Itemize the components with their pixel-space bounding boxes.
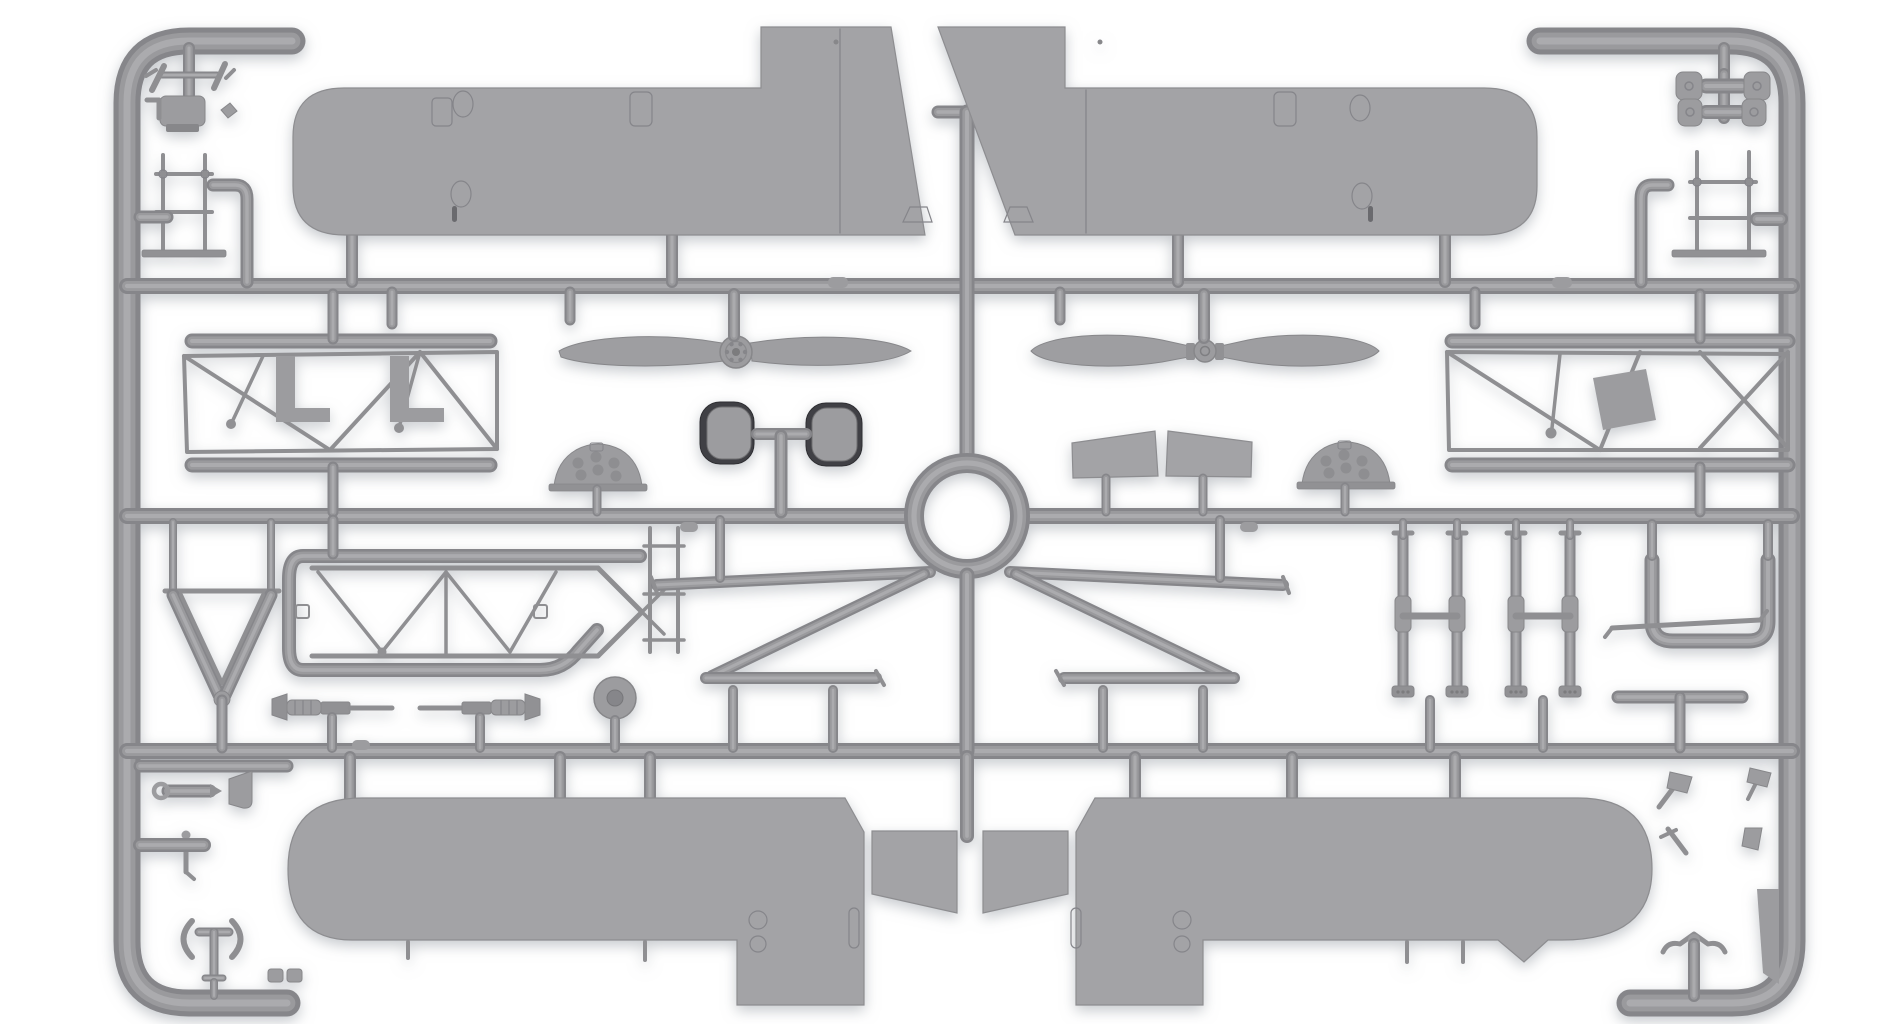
lower-wing-right-pins bbox=[1407, 942, 1463, 962]
clamp-lug-d bbox=[1742, 99, 1766, 126]
gear-strut-2-holes bbox=[1455, 690, 1458, 693]
pad-block-a bbox=[268, 969, 283, 982]
nstrut-left-ticks bbox=[651, 577, 884, 685]
gear-strut-3-holes bbox=[1519, 690, 1522, 693]
gate-nub-5 bbox=[352, 740, 370, 750]
wheel-left-hub bbox=[707, 407, 751, 459]
clamp-lug-a bbox=[1676, 72, 1702, 100]
machine-gun-right-muzzle bbox=[525, 694, 540, 720]
propeller-right-blade-b bbox=[1216, 335, 1379, 366]
tl-screw-right-tick bbox=[226, 70, 234, 78]
cabane-truss-left-pendant-a bbox=[233, 356, 263, 420]
propeller-left-bolts bbox=[738, 358, 742, 362]
gear-strut-4-holes bbox=[1563, 690, 1566, 693]
tl-chip bbox=[221, 103, 237, 118]
tailplane-half-right bbox=[1166, 431, 1252, 477]
upper-wing-right bbox=[938, 27, 1537, 235]
wing-joiner-left bbox=[872, 831, 957, 913]
fuselage-frame-loop-highlight bbox=[289, 556, 640, 670]
pad-block-b bbox=[287, 969, 302, 982]
instrument-panel-left-dials bbox=[593, 465, 604, 476]
small-wedge-d bbox=[1742, 828, 1762, 850]
propeller-left-blade-a bbox=[559, 337, 724, 366]
propeller-right-blade-a bbox=[1031, 335, 1194, 366]
cabane-truss-right-pendant bbox=[1552, 354, 1560, 428]
clamp-lug-b bbox=[1744, 72, 1770, 100]
propeller-left-blade-b bbox=[750, 337, 911, 365]
machine-gun-left-body bbox=[321, 702, 350, 714]
wing-joiner-right bbox=[983, 831, 1068, 913]
ladder-right-base bbox=[1672, 250, 1766, 257]
instrument-panel-left-dials bbox=[611, 471, 622, 482]
cabane-truss-left-diag-c bbox=[420, 352, 497, 449]
upper-wing-left-dot bbox=[834, 40, 839, 45]
gear-strut-2-holes bbox=[1450, 690, 1453, 693]
pick-part-b-head bbox=[1747, 768, 1771, 787]
upper-wing-right-slot bbox=[1368, 206, 1373, 222]
center-ring-highlight bbox=[914, 463, 1020, 569]
upper-wing-left-slot bbox=[452, 206, 457, 222]
gear-strut-1-holes bbox=[1401, 690, 1404, 693]
instrument-panel-left-dials bbox=[591, 452, 602, 463]
tl-bracket bbox=[147, 100, 159, 118]
gear-strut-3-holes bbox=[1514, 690, 1517, 693]
nstrut-right-ticks bbox=[1056, 577, 1289, 685]
fuselage-truss-bays bbox=[318, 572, 556, 652]
cabane-truss-right-x bbox=[1700, 352, 1788, 448]
u-tube-part bbox=[1652, 560, 1768, 641]
ladder-left-base bbox=[142, 250, 226, 257]
machine-gun-left-muzzle bbox=[272, 694, 287, 720]
upper-wing-right-dot bbox=[1098, 40, 1103, 45]
cabane-truss-left-ball-a bbox=[226, 419, 236, 429]
cabane-truss-left-ball-b bbox=[394, 423, 404, 433]
u-tube-part-mid bbox=[1652, 560, 1768, 641]
fuselage-frame-loop bbox=[289, 556, 640, 670]
c-bracket-right bbox=[232, 921, 241, 957]
propeller-left-bolts bbox=[729, 342, 733, 346]
sprue-sheet bbox=[0, 0, 1884, 1024]
vee-strut-leg-a-highlight bbox=[173, 595, 219, 695]
fuselage-truss-washer-a bbox=[296, 605, 309, 618]
instrument-panel-right-dials bbox=[1321, 456, 1332, 467]
gate-nub-4 bbox=[1240, 522, 1258, 532]
machine-gun-left-jacket bbox=[287, 700, 321, 715]
clamp-lug-c bbox=[1678, 99, 1702, 126]
machine-gun-right-body bbox=[462, 702, 491, 714]
gear-strut-1-holes bbox=[1406, 690, 1409, 693]
cabane-truss-right-ball bbox=[1546, 428, 1557, 439]
instrument-panel-left-dials bbox=[609, 458, 620, 469]
machine-gun-right-jacket bbox=[491, 700, 525, 715]
fuselage-truss-node bbox=[378, 648, 387, 657]
scoop-part bbox=[229, 771, 252, 808]
gate-nub-2 bbox=[1552, 277, 1572, 288]
tl-box-base bbox=[166, 124, 199, 132]
propeller-left-bolts bbox=[729, 358, 733, 362]
instrument-panel-left-dials bbox=[573, 458, 584, 469]
nstrut-right-diag-highlight bbox=[1016, 574, 1228, 676]
lower-wing-left-pins bbox=[408, 942, 645, 960]
gear-strut-4-holes bbox=[1568, 690, 1571, 693]
wheel-disc-hub bbox=[607, 690, 623, 706]
fuselage-truss-tail-x bbox=[642, 590, 664, 634]
kit-sprue-render bbox=[0, 0, 1884, 1024]
gate-nub-3 bbox=[680, 522, 698, 532]
instrument-panel-left-dials bbox=[576, 470, 587, 481]
wheel-right-hub bbox=[812, 408, 857, 461]
gear-strut-2-holes bbox=[1460, 690, 1463, 693]
instrument-panel-right-dials bbox=[1339, 450, 1350, 461]
runner-el-left bbox=[213, 185, 247, 282]
instrument-panel-right-dials bbox=[1357, 456, 1368, 467]
cabane-truss-left-block-a bbox=[276, 356, 330, 422]
c-bracket-left bbox=[184, 921, 193, 957]
tl-box bbox=[160, 96, 205, 126]
instrument-panel-right-dials bbox=[1359, 469, 1370, 480]
propeller-left-hub-hole bbox=[732, 348, 740, 356]
lower-wing-right bbox=[1076, 798, 1652, 1005]
nstrut-left-diag-highlight bbox=[712, 574, 924, 676]
runner-el-right bbox=[1641, 185, 1668, 282]
sprue-parts-group bbox=[127, 27, 1792, 1005]
lower-wing-left bbox=[288, 798, 864, 1005]
venturi-tail bbox=[210, 784, 222, 798]
lever-part-hook bbox=[186, 872, 194, 879]
venturi-ring bbox=[154, 784, 168, 798]
tailplane-half-left bbox=[1072, 431, 1158, 478]
instrument-panel-right-dials bbox=[1324, 468, 1335, 479]
propeller-left-bolts bbox=[738, 342, 742, 346]
fuselage-truss-tail bbox=[598, 568, 642, 656]
propeller-left-bolts bbox=[725, 350, 729, 354]
gear-strut-1-holes bbox=[1396, 690, 1399, 693]
u-tube-part-highlight bbox=[1652, 560, 1768, 641]
fuselage-frame-loop-mid bbox=[289, 556, 640, 670]
gear-strut-4-holes bbox=[1573, 690, 1576, 693]
vee-strut-leg-b-highlight bbox=[225, 595, 271, 695]
gate-nub-1 bbox=[828, 277, 848, 288]
cabane-truss-right-block bbox=[1593, 369, 1656, 430]
instrument-panel-right-dials bbox=[1341, 463, 1352, 474]
cabane-truss-right-diag-a bbox=[1447, 352, 1600, 450]
upper-wing-left bbox=[293, 27, 925, 235]
gear-strut-3-holes bbox=[1509, 690, 1512, 693]
frame-wedge-right bbox=[1757, 889, 1779, 984]
axle-rod bbox=[1612, 620, 1760, 628]
propeller-left-bolts bbox=[743, 350, 747, 354]
